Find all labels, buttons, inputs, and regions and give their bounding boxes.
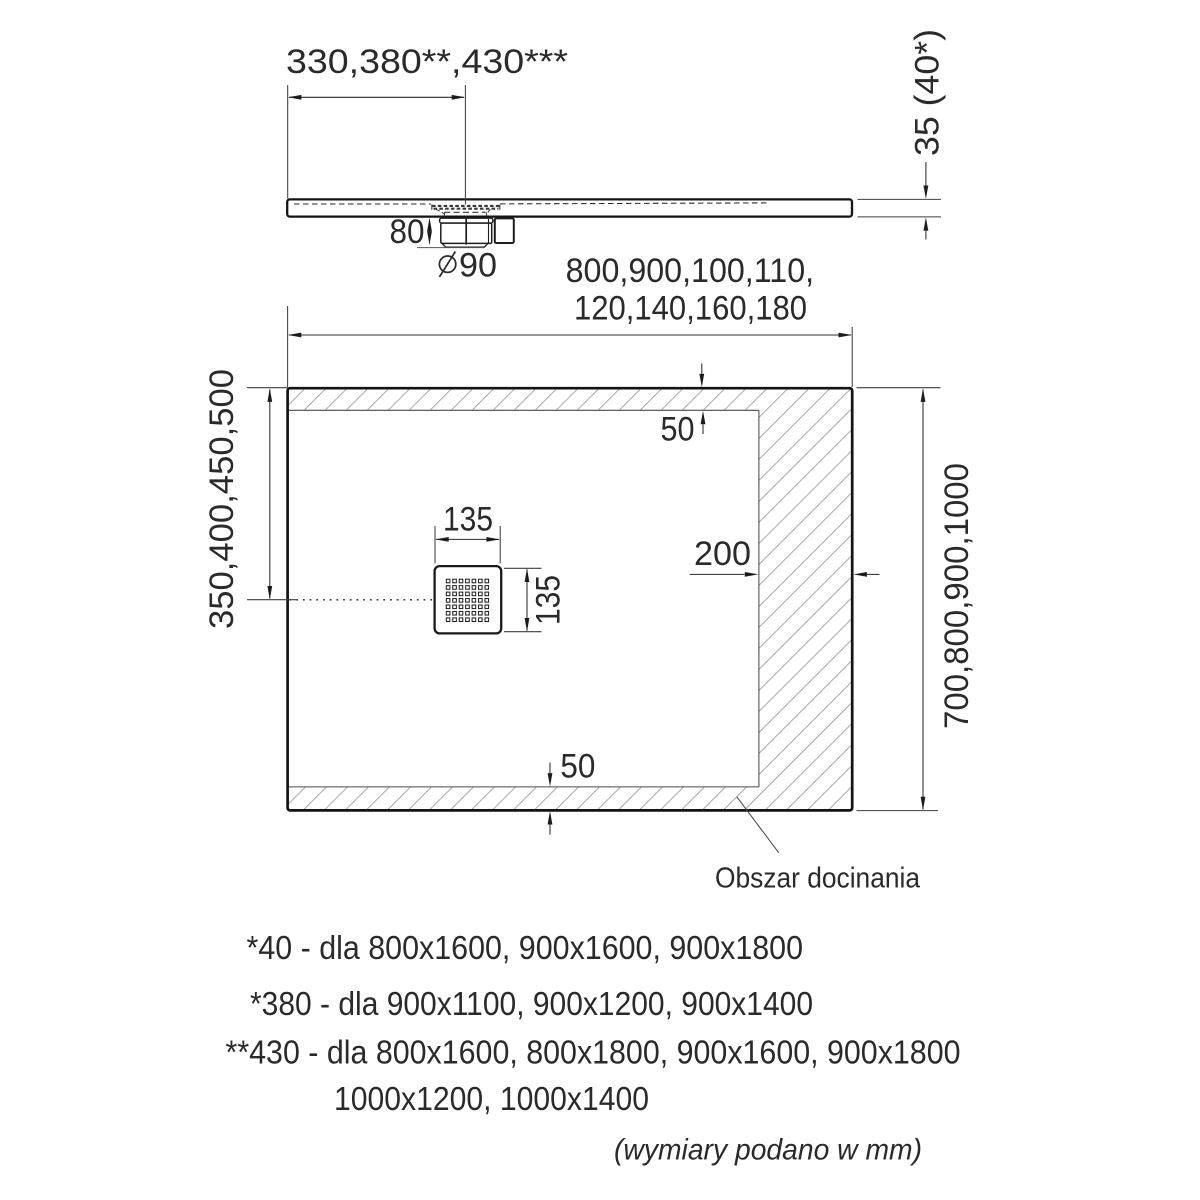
svg-text:*40 - dla 800x1600, 900x1600,: *40 - dla 800x1600, 900x1600, 900x1800 bbox=[247, 929, 804, 966]
svg-text:350,400,450,500: 350,400,450,500 bbox=[203, 369, 241, 629]
svg-text:200: 200 bbox=[694, 535, 751, 573]
svg-text:330,380**,430***: 330,380**,430*** bbox=[286, 43, 568, 81]
svg-text:**430 - dla 800x1600, 800x1800: **430 - dla 800x1600, 800x1800, 900x1600… bbox=[226, 1033, 961, 1070]
svg-text:35 (40*): 35 (40*) bbox=[909, 29, 947, 156]
svg-text:1000x1200, 1000x1400: 1000x1200, 1000x1400 bbox=[334, 1080, 649, 1117]
svg-text:700,800,900,1000: 700,800,900,1000 bbox=[938, 463, 976, 729]
svg-text:135: 135 bbox=[530, 575, 568, 625]
svg-text:Obszar docinania: Obszar docinania bbox=[715, 863, 921, 895]
svg-text:90: 90 bbox=[459, 247, 497, 285]
svg-text:80: 80 bbox=[390, 213, 425, 251]
svg-text:50: 50 bbox=[661, 411, 695, 449]
svg-text:135: 135 bbox=[443, 501, 493, 539]
svg-text:50: 50 bbox=[560, 748, 595, 786]
svg-text:*380 - dla 900x1100, 900x1200,: *380 - dla 900x1100, 900x1200, 900x1400 bbox=[250, 985, 813, 1022]
svg-text:800,900,100,110,: 800,900,100,110, bbox=[566, 252, 815, 290]
svg-text:(wymiary podano w mm): (wymiary podano w mm) bbox=[614, 1134, 922, 1167]
svg-text:120,140,160,180: 120,140,160,180 bbox=[574, 290, 807, 328]
